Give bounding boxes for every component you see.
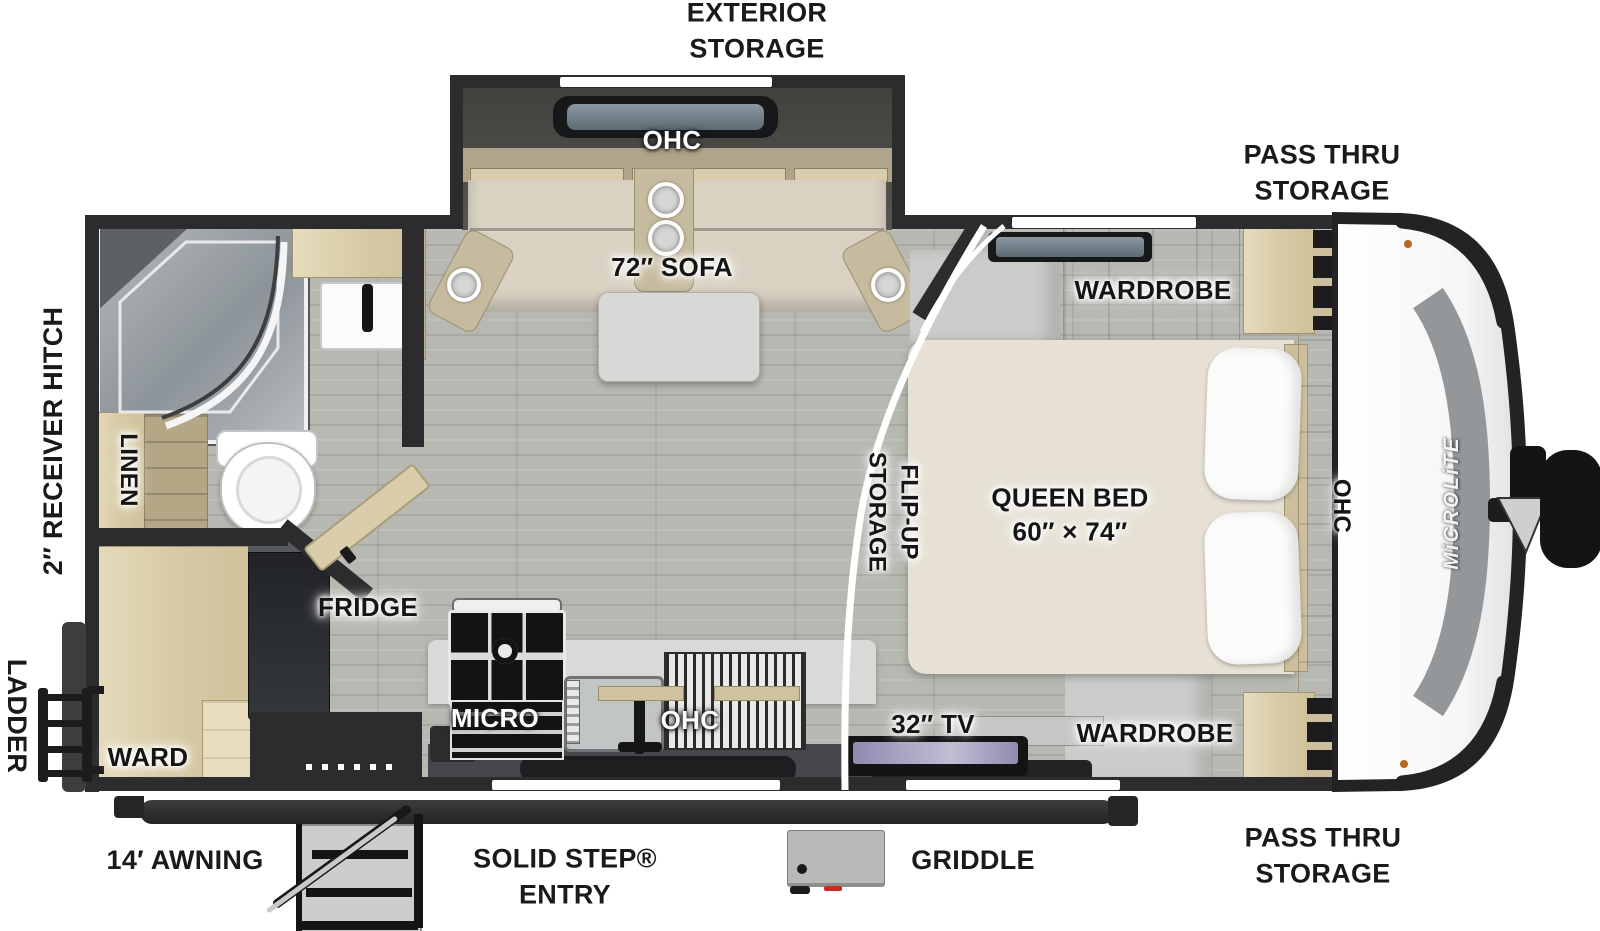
label-line: QUEEN BED bbox=[991, 481, 1148, 515]
dinette-table bbox=[598, 292, 760, 382]
label-line: SOLID STEP® bbox=[473, 841, 657, 877]
pillow bbox=[1203, 346, 1302, 501]
label-griddle: GRIDDLE bbox=[911, 843, 1035, 879]
label-tv: 32″ TV bbox=[891, 707, 975, 741]
step-light-dot bbox=[322, 764, 328, 770]
label-ladder: LADDER bbox=[0, 659, 34, 773]
ladder-mount bbox=[88, 686, 104, 694]
step-rail-right bbox=[414, 814, 423, 928]
label-linen: LINEN bbox=[112, 433, 144, 507]
label-awning: 14′ AWNING bbox=[107, 843, 264, 879]
ladder-icon bbox=[38, 688, 48, 782]
marker-light bbox=[1404, 240, 1412, 248]
griddle-knob bbox=[797, 864, 807, 874]
entry-landing bbox=[250, 712, 422, 778]
bath-faucet-icon bbox=[362, 284, 373, 332]
label-ohc-front: OHC bbox=[1325, 479, 1357, 533]
step-light-dot bbox=[386, 764, 392, 770]
step-light-dot bbox=[354, 764, 360, 770]
griddle-red-detail bbox=[824, 886, 842, 891]
label-line: ENTRY bbox=[473, 877, 657, 913]
label-wardrobe-top: WARDROBE bbox=[1075, 273, 1232, 307]
passthru-cabinet-top bbox=[1243, 226, 1315, 334]
slide-wall-right bbox=[892, 75, 905, 229]
sink-rail bbox=[566, 680, 580, 744]
sink-faucet-spout bbox=[618, 742, 662, 752]
brand-logo: MiCROLiTE bbox=[1438, 436, 1466, 570]
toilet-seat bbox=[236, 456, 302, 524]
cap-trim-top bbox=[1402, 222, 1503, 322]
bedroom-window-glass bbox=[996, 237, 1144, 257]
wall-top-left bbox=[85, 215, 462, 229]
hitch-drawbar bbox=[1488, 498, 1538, 522]
label-line: 60″ × 74″ bbox=[991, 515, 1148, 549]
label-sofa: 72″ SOFA bbox=[611, 250, 733, 284]
fridge-box bbox=[248, 552, 330, 720]
step-light-dot bbox=[370, 764, 376, 770]
label-exterior-storage: EXTERIOR STORAGE bbox=[687, 0, 827, 67]
label-wardrobe-bottom: WARDROBE bbox=[1077, 716, 1234, 750]
passthru-shelves-bottom bbox=[1307, 698, 1352, 784]
griddle-icon bbox=[787, 830, 885, 887]
ohc-shelf-strip-right bbox=[714, 686, 800, 701]
bathroom-wall-right bbox=[402, 229, 424, 447]
bathroom-wall-bottom bbox=[88, 528, 288, 546]
label-line: STORAGE bbox=[687, 31, 827, 67]
marker-light bbox=[1400, 760, 1408, 768]
label-queen-bed: QUEEN BED 60″ × 74″ bbox=[991, 481, 1148, 550]
cupholder bbox=[447, 268, 481, 302]
window-strip bbox=[492, 780, 780, 790]
hitch-jack bbox=[1510, 446, 1546, 506]
ohc-shelf-strip-left bbox=[598, 686, 684, 701]
step-tread bbox=[306, 888, 412, 897]
ladder-mount bbox=[88, 766, 104, 774]
window-strip bbox=[560, 77, 772, 87]
pillow bbox=[1203, 510, 1302, 665]
label-flip-up-storage: FLIP-UP STORAGE bbox=[861, 452, 924, 572]
step-light-dot bbox=[338, 764, 344, 770]
stove-burner-icon bbox=[492, 638, 518, 664]
front-cap-body bbox=[1338, 224, 1513, 780]
label-ohc-slide: OHC bbox=[643, 123, 702, 157]
passthru-shelves-top bbox=[1313, 230, 1358, 330]
label-ohc-kitchen: OHC bbox=[661, 703, 720, 737]
step-tread bbox=[300, 921, 418, 930]
label-line: FLIP-UP bbox=[893, 452, 925, 572]
ladder-rung bbox=[44, 746, 88, 753]
cupholder bbox=[871, 268, 905, 302]
linen-shelves bbox=[144, 414, 208, 530]
label-fridge: FRIDGE bbox=[318, 590, 418, 624]
ladder-rung bbox=[44, 694, 88, 701]
label-line: EXTERIOR bbox=[687, 0, 827, 31]
label-solid-step: SOLID STEP® ENTRY bbox=[473, 841, 657, 912]
hitch-coupler bbox=[1498, 498, 1548, 552]
window-strip bbox=[906, 780, 1120, 790]
cap-trim-bottom bbox=[1402, 682, 1503, 782]
griddle-handle bbox=[790, 886, 810, 894]
awning-bar bbox=[140, 800, 1115, 824]
label-ward: WARD bbox=[108, 740, 189, 774]
slide-wall-left bbox=[450, 75, 463, 229]
step-tread bbox=[312, 850, 408, 859]
label-line: STORAGE bbox=[1245, 856, 1402, 892]
propane-cover bbox=[1540, 450, 1600, 568]
awning-end-bracket bbox=[1108, 796, 1138, 826]
label-pass-thru-bottom: PASS THRU STORAGE bbox=[1245, 820, 1402, 891]
passthru-cabinet-bottom bbox=[1243, 692, 1315, 788]
awning-hook bbox=[114, 796, 144, 818]
window-strip bbox=[1012, 217, 1196, 228]
step-light-dot bbox=[306, 764, 312, 770]
label-pass-thru-top: PASS THRU STORAGE bbox=[1244, 137, 1401, 208]
cupholder bbox=[648, 182, 684, 218]
tv-screen bbox=[853, 742, 1018, 764]
label-micro: MICRO bbox=[451, 701, 539, 735]
label-line: STORAGE bbox=[1244, 173, 1401, 209]
label-line: STORAGE bbox=[861, 452, 893, 572]
floorplan-canvas: EXTERIOR STORAGE PASS THRU STORAGE PASS … bbox=[0, 0, 1600, 931]
label-line: PASS THRU bbox=[1245, 820, 1402, 856]
label-receiver-hitch: 2″ RECEIVER HITCH bbox=[36, 307, 72, 576]
ladder-rung bbox=[44, 770, 88, 777]
ladder-rung bbox=[44, 720, 88, 727]
label-line: PASS THRU bbox=[1244, 137, 1401, 173]
step-rail-left bbox=[296, 824, 302, 931]
